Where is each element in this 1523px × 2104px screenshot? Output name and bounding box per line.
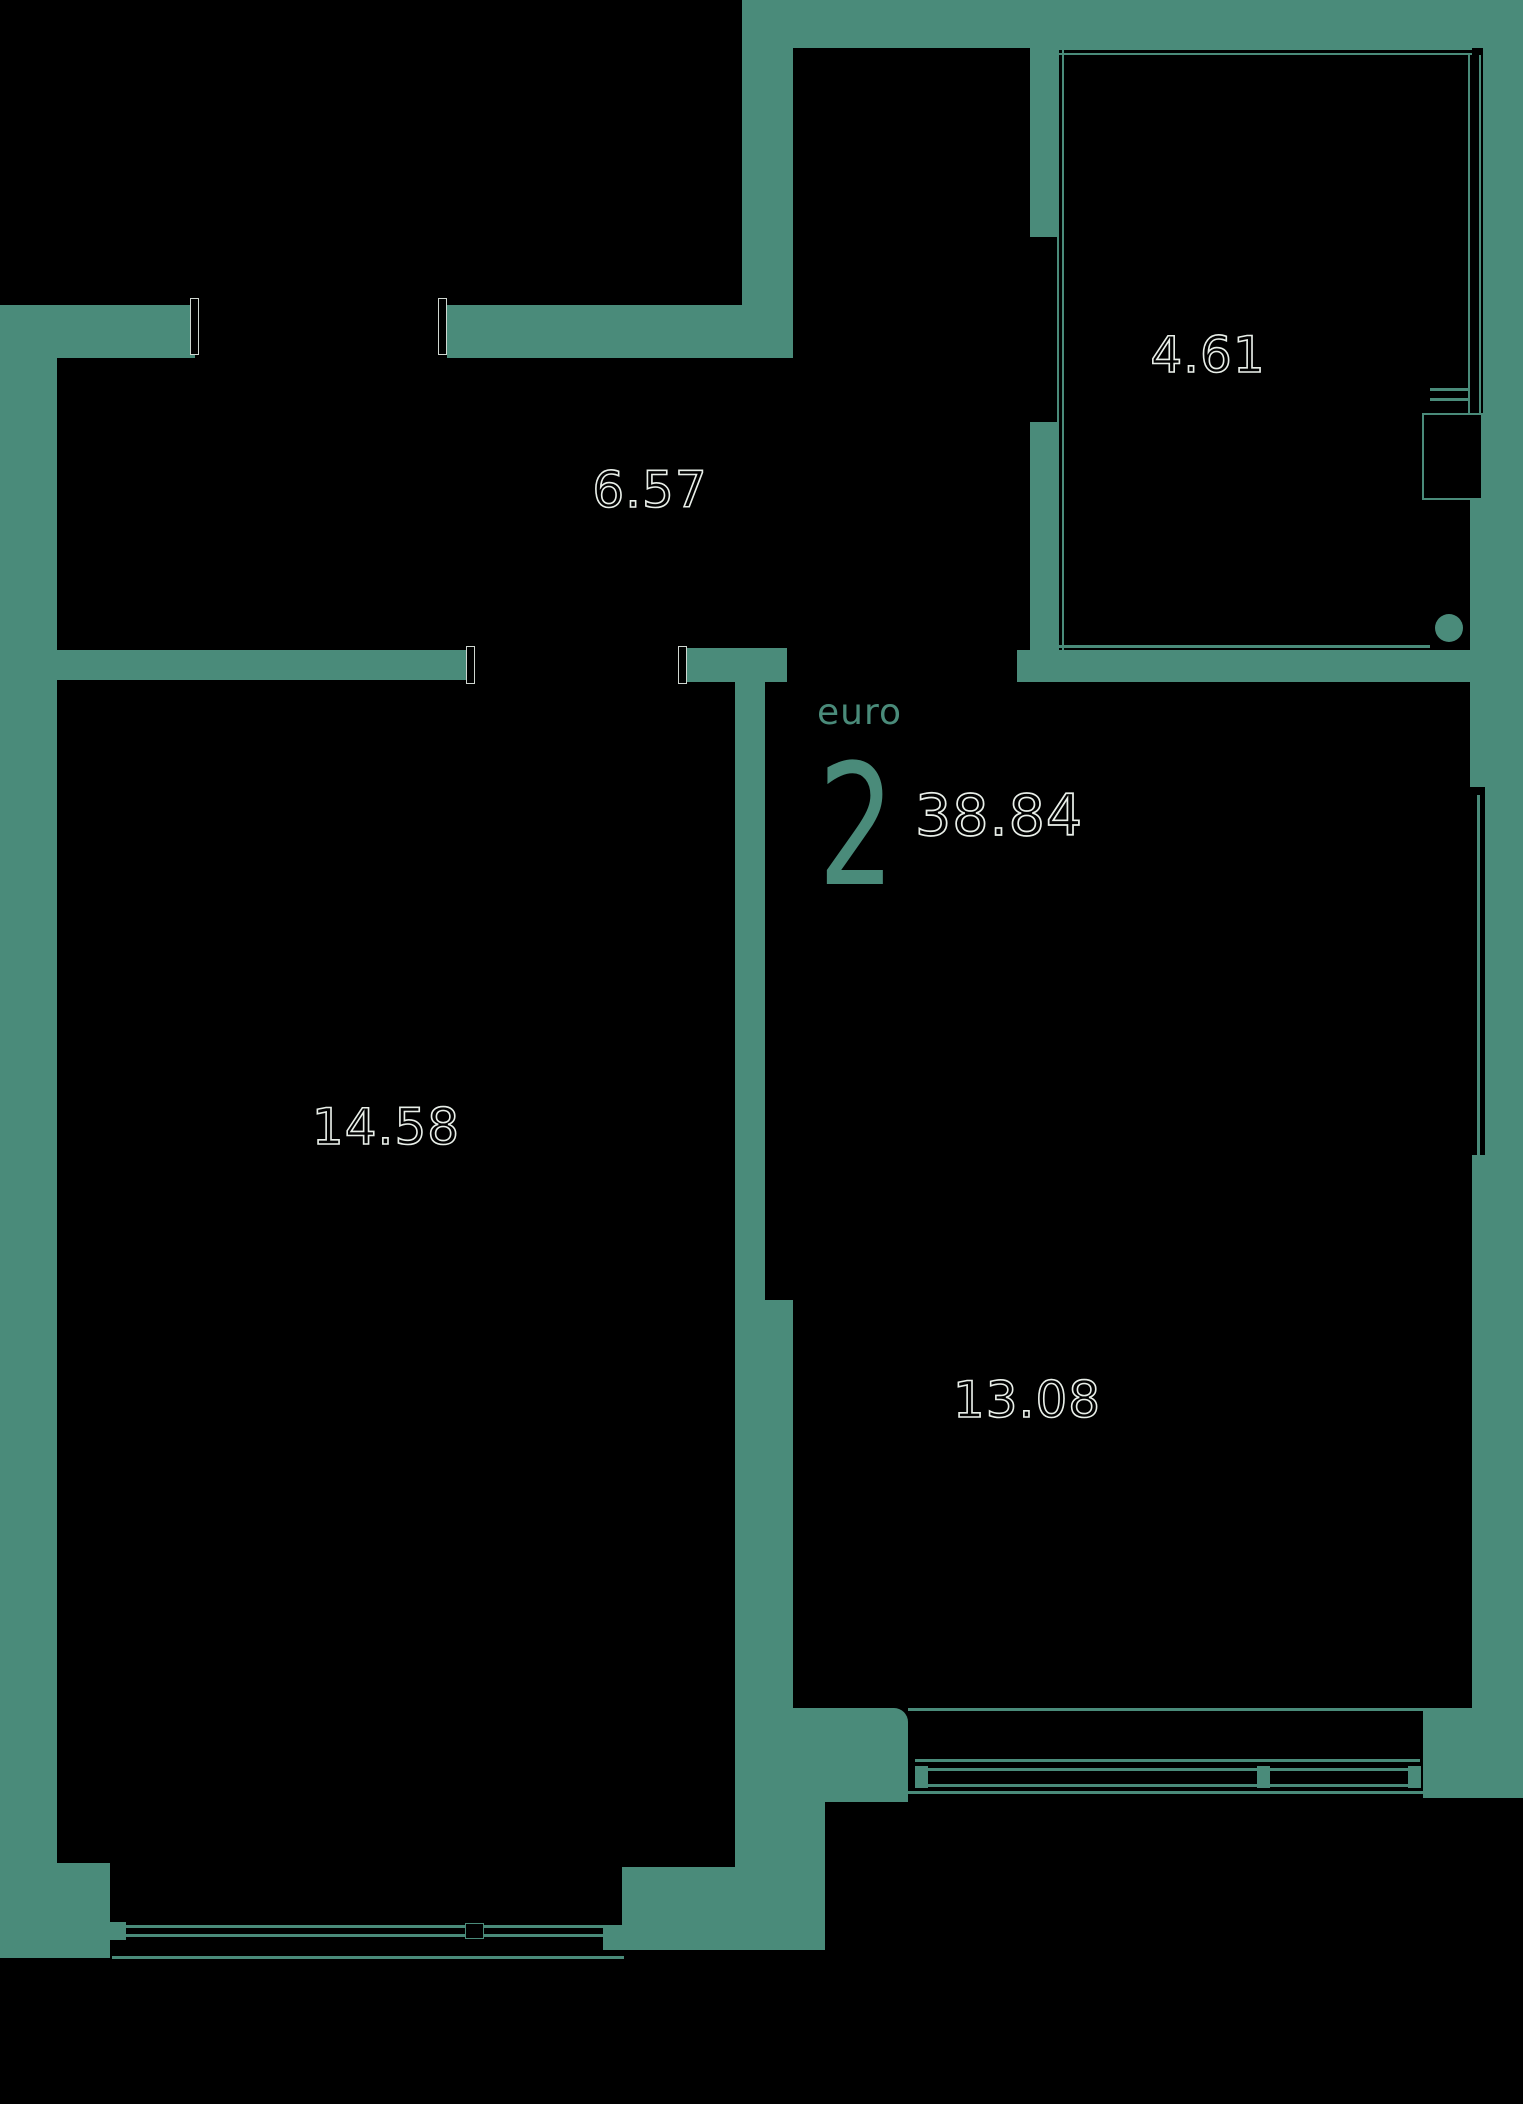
bedroom-window-frame-bottom bbox=[112, 1934, 607, 1937]
wall-bedroom-bottom bbox=[622, 1867, 735, 1950]
balcony-glazing-left-a bbox=[1057, 47, 1059, 655]
wall-middle-lower bbox=[735, 1300, 793, 1802]
wall-balcony-stub-bottom bbox=[1030, 422, 1057, 655]
living-window-top-line bbox=[908, 1708, 1423, 1711]
bedroom-window-sill bbox=[112, 1956, 624, 1959]
wall-hall-band-right bbox=[687, 648, 787, 682]
wall-balcony-stub-top bbox=[1030, 48, 1057, 237]
bedroom-window-end-step bbox=[610, 1938, 622, 1950]
room-area-label-hall: 6.57 bbox=[592, 461, 707, 519]
balcony-ac-box bbox=[1422, 413, 1483, 500]
wall-middle-upper bbox=[735, 680, 765, 1305]
right-window-line bbox=[1477, 795, 1480, 1155]
wall-main-band-right bbox=[1017, 650, 1470, 682]
room-area-label-balcony: 4.61 bbox=[1150, 326, 1265, 384]
room-area-label-bedroom: 14.58 bbox=[312, 1098, 460, 1156]
hall-door-jamb-left bbox=[466, 646, 475, 684]
floor-plan: 6.57 4.61 14.58 13.08 euro 2 38.84 bbox=[0, 0, 1523, 2104]
balcony-glazing-top-a bbox=[1057, 47, 1472, 50]
unit-total-area: 38.84 bbox=[915, 783, 1083, 849]
living-window-end-right bbox=[1408, 1766, 1421, 1788]
balcony-glazing-bottom bbox=[1057, 645, 1430, 648]
wall-right-upper bbox=[1470, 490, 1523, 787]
entry-door-jamb-left bbox=[190, 298, 199, 355]
living-window-mid-line bbox=[915, 1759, 1420, 1762]
unit-rooms-count: 2 bbox=[818, 742, 895, 910]
living-window-mullion bbox=[1257, 1766, 1270, 1788]
living-window-sill bbox=[908, 1791, 1423, 1794]
wall-hall-band-left bbox=[48, 650, 473, 680]
wall-step-block bbox=[793, 1708, 908, 1802]
wall-top-arm bbox=[742, 0, 793, 358]
living-window-end-left bbox=[915, 1766, 928, 1788]
balcony-column-mark bbox=[1435, 614, 1463, 642]
living-window-frame-bottom bbox=[915, 1784, 1408, 1787]
wall-mid-bottom-block bbox=[735, 1802, 825, 1950]
wall-right-outer-strip bbox=[1483, 48, 1523, 490]
balcony-glazing-top-b bbox=[1057, 53, 1472, 55]
wall-left-bottom-block bbox=[0, 1863, 110, 1958]
bedroom-window-jamb-left bbox=[110, 1922, 126, 1940]
wall-top-band bbox=[742, 0, 1523, 48]
bedroom-window-frame-top bbox=[112, 1925, 607, 1928]
wall-right-mid bbox=[1485, 787, 1523, 1155]
balcony-glazing-left-b bbox=[1062, 47, 1064, 655]
entry-door-jamb-right bbox=[438, 298, 447, 355]
balcony-sill-line-b bbox=[1430, 398, 1470, 401]
bedroom-window-notch bbox=[465, 1923, 484, 1939]
unit-type-label: euro bbox=[817, 692, 902, 733]
wall-bottom-right-block bbox=[1423, 1708, 1523, 1798]
living-window-frame-top bbox=[915, 1768, 1408, 1771]
wall-right-lower bbox=[1472, 1155, 1523, 1708]
room-area-label-living: 13.08 bbox=[953, 1371, 1101, 1429]
hall-door-jamb-right bbox=[678, 646, 687, 684]
wall-left-outer bbox=[0, 305, 57, 1863]
balcony-sill-line-a bbox=[1430, 388, 1470, 391]
